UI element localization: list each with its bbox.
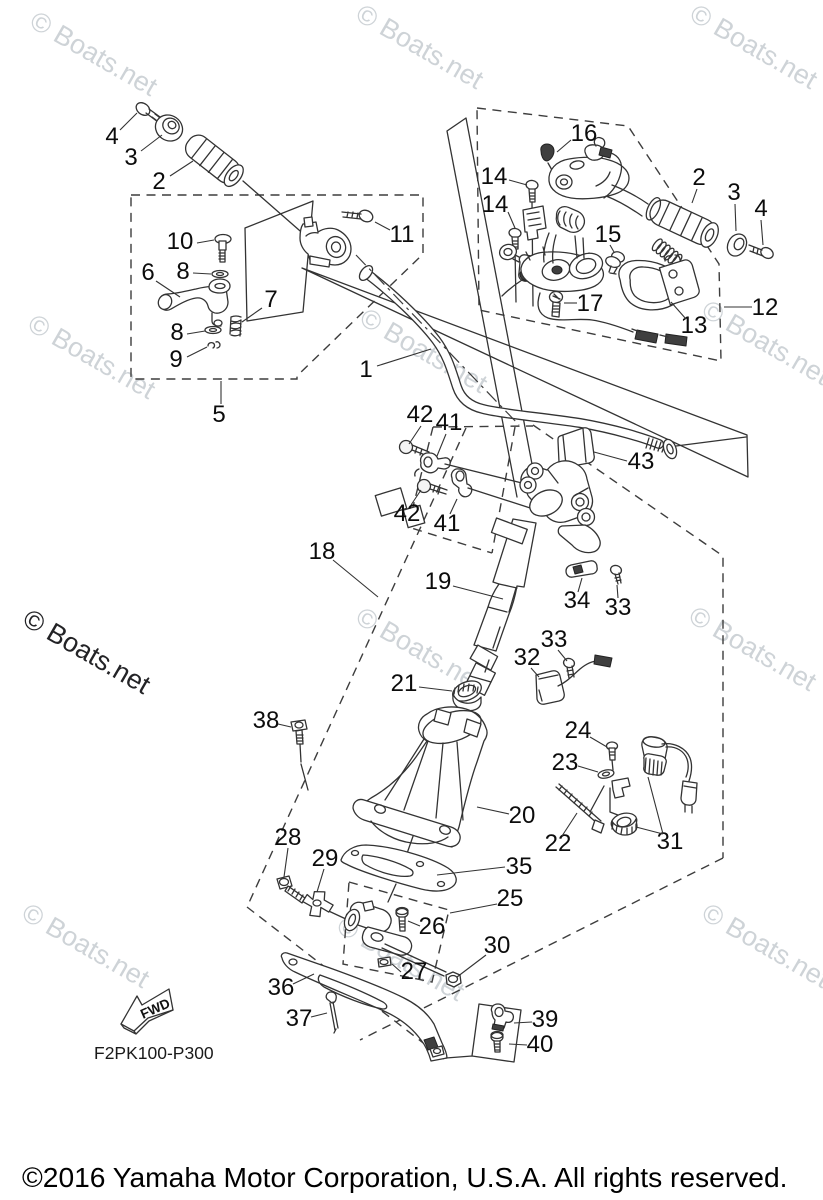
svg-text:35: 35	[506, 853, 533, 880]
svg-text:8: 8	[176, 258, 189, 285]
svg-text:16: 16	[571, 120, 598, 147]
svg-text:39: 39	[532, 1006, 559, 1033]
svg-text:17: 17	[577, 290, 604, 317]
svg-text:28: 28	[275, 824, 302, 851]
svg-text:33: 33	[605, 594, 632, 621]
svg-text:33: 33	[541, 626, 568, 653]
svg-text:15: 15	[595, 221, 622, 248]
svg-text:25: 25	[497, 885, 524, 912]
svg-text:24: 24	[565, 717, 592, 744]
svg-text:29: 29	[312, 845, 339, 872]
svg-text:5: 5	[212, 401, 225, 428]
svg-text:38: 38	[253, 707, 280, 734]
svg-text:34: 34	[564, 587, 591, 614]
svg-text:26: 26	[419, 913, 446, 940]
svg-text:22: 22	[545, 830, 572, 857]
svg-text:4: 4	[754, 195, 767, 222]
svg-text:41: 41	[436, 409, 463, 436]
svg-text:14: 14	[482, 191, 509, 218]
svg-text:8: 8	[170, 319, 183, 346]
svg-text:36: 36	[268, 974, 295, 1001]
svg-text:3: 3	[124, 144, 137, 171]
svg-text:7: 7	[264, 286, 277, 313]
svg-text:42: 42	[394, 500, 421, 527]
svg-text:30: 30	[484, 932, 511, 959]
svg-text:6: 6	[141, 259, 154, 286]
svg-text:F2PK100-P300: F2PK100-P300	[94, 1043, 214, 1063]
svg-text:14: 14	[481, 163, 508, 190]
svg-text:10: 10	[167, 228, 194, 255]
svg-text:9: 9	[169, 346, 182, 373]
svg-text:3: 3	[727, 179, 740, 206]
svg-text:23: 23	[552, 749, 579, 776]
svg-text:1: 1	[359, 356, 372, 383]
svg-text:20: 20	[509, 802, 536, 829]
svg-text:2: 2	[692, 164, 705, 191]
svg-text:12: 12	[752, 294, 779, 321]
svg-text:32: 32	[514, 644, 541, 671]
svg-text:27: 27	[401, 958, 428, 985]
svg-text:19: 19	[425, 568, 452, 595]
svg-text:18: 18	[309, 538, 336, 565]
svg-text:11: 11	[390, 221, 415, 248]
svg-text:31: 31	[657, 828, 684, 855]
svg-text:42: 42	[407, 401, 434, 428]
svg-text:40: 40	[527, 1031, 554, 1058]
svg-text:4: 4	[105, 123, 118, 150]
svg-text:41: 41	[434, 510, 461, 537]
svg-text:©2016 Yamaha Motor Corporation: ©2016 Yamaha Motor Corporation, U.S.A. A…	[22, 1161, 788, 1193]
svg-text:37: 37	[286, 1005, 313, 1032]
svg-text:21: 21	[391, 670, 418, 697]
svg-text:13: 13	[681, 312, 708, 339]
svg-text:2: 2	[152, 168, 165, 195]
svg-text:43: 43	[628, 448, 655, 475]
